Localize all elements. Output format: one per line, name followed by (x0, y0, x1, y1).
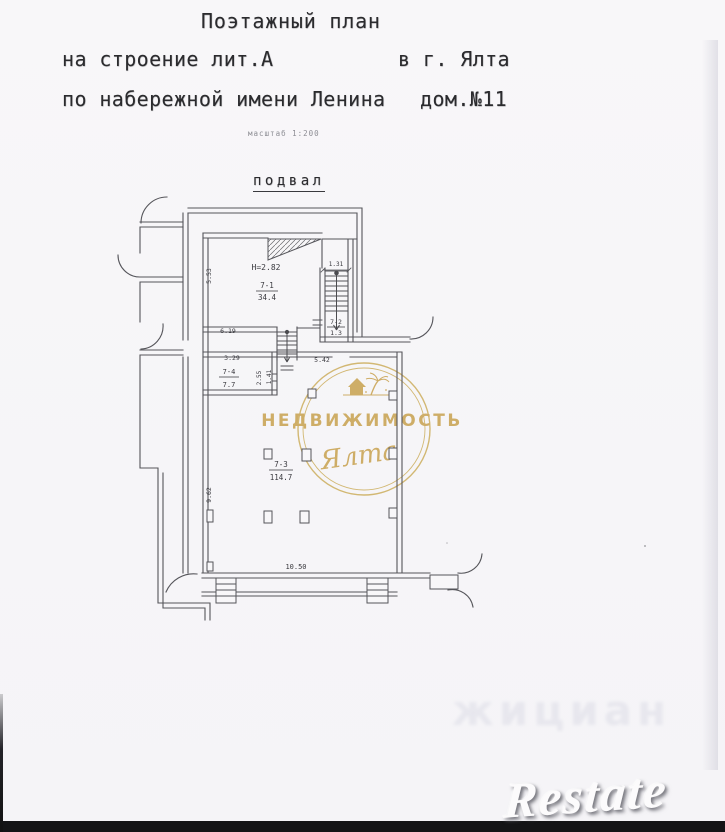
dim-10-50: 10.50 (285, 563, 306, 571)
room-7-1-area: 34.4 (258, 293, 277, 302)
watermark-brand-text: НЕДВИЖИМОСТЬ (261, 411, 463, 431)
entry-steps (216, 575, 458, 603)
pilaster (207, 562, 213, 571)
scan-left-edge (0, 694, 3, 832)
steps-box (216, 578, 236, 603)
room-7-3-area: 114.7 (270, 473, 293, 482)
scanned-page: Поэтажный план на строение лит.А в г. Ял… (0, 0, 725, 832)
steps-box (367, 578, 388, 603)
bleed-through-text: жициан (452, 686, 671, 735)
room-7-1-number: 7-1 (260, 281, 274, 290)
page-right-shadow (702, 40, 718, 770)
height-note: Н=2.82 (252, 263, 281, 272)
door-leaf-box (430, 575, 458, 589)
dim-6-19: 6.19 (220, 327, 236, 335)
pilaster (389, 391, 397, 400)
dim-1-41: 1.41 (266, 369, 273, 384)
dim-2-55: 2.55 (256, 370, 263, 385)
watermark-city-script: Ялта (318, 436, 400, 477)
room-7-2-number: 7-2 (330, 318, 342, 326)
room-7-4-number: 7-4 (223, 368, 236, 376)
room-7-4-area: 7.7 (223, 381, 236, 389)
watermark-house-palm-icon (343, 373, 391, 395)
dim-9-62: 9.62 (205, 487, 213, 503)
dim-3-29: 3.29 (224, 354, 240, 362)
right-door-walls (362, 337, 410, 342)
pilaster (207, 510, 213, 522)
column (300, 511, 309, 523)
dim-1-31: 1.31 (329, 261, 344, 268)
pilaster (389, 448, 397, 459)
column (264, 511, 272, 523)
room-7-3-number: 7-3 (274, 460, 288, 469)
scan-bottom-bar (0, 821, 725, 832)
column (302, 449, 311, 461)
column (308, 389, 316, 398)
restate-watermark: Restate (502, 760, 670, 830)
mid-stair-door-ticks (281, 366, 293, 370)
stair-door-ticks (313, 320, 322, 325)
room-7-2-area: 1.3 (330, 329, 342, 337)
stair-direction-arrows (285, 271, 340, 362)
corridor-walls (183, 213, 208, 573)
dim-5-42: 5.42 (314, 356, 330, 364)
understair-hatch-triangle (268, 239, 321, 260)
pilaster (389, 508, 397, 518)
stairwell-walls (320, 239, 362, 342)
dim-5-53: 5.53 (205, 268, 213, 284)
scan-specks (446, 542, 646, 547)
column (264, 449, 272, 459)
